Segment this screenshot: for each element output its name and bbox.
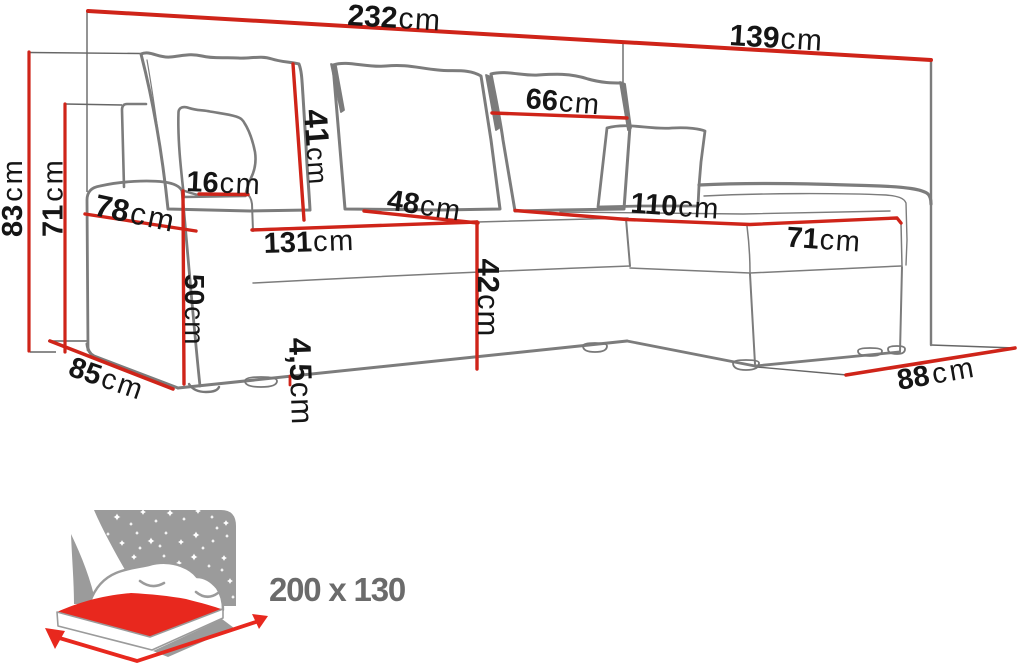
svg-text:42cm: 42cm xyxy=(471,259,506,338)
svg-text:131cm: 131cm xyxy=(263,225,355,260)
svg-text:110cm: 110cm xyxy=(630,188,721,226)
svg-text:66cm: 66cm xyxy=(524,83,601,121)
svg-text:71cm: 71cm xyxy=(786,222,863,259)
svg-text:71cm: 71cm xyxy=(38,157,70,237)
svg-text:50cm: 50cm xyxy=(179,274,210,345)
svg-text:232cm: 232cm xyxy=(347,0,443,38)
svg-text:4,5cm: 4,5cm xyxy=(282,337,320,426)
svg-text:83cm: 83cm xyxy=(0,157,29,237)
svg-text:139cm: 139cm xyxy=(729,19,825,58)
svg-text:200 x 130: 200 x 130 xyxy=(269,571,405,608)
svg-text:16cm: 16cm xyxy=(186,166,262,201)
